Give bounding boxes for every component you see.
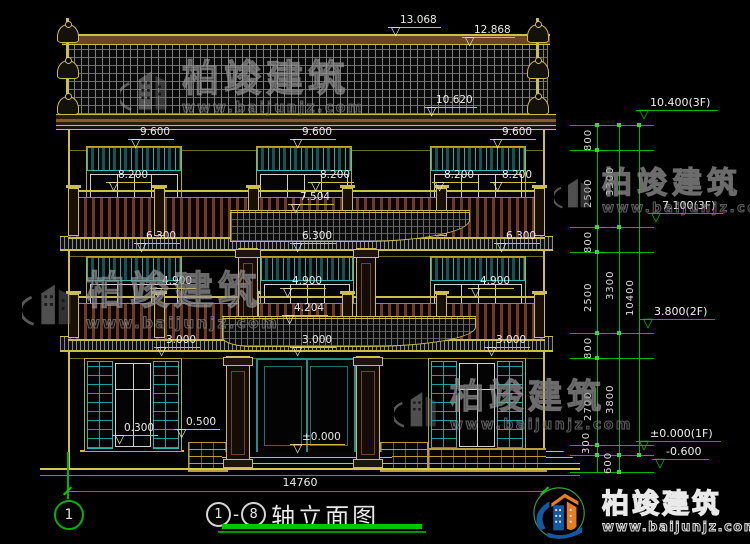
level-triangle-icon: ▽ bbox=[391, 27, 400, 36]
column-shaft bbox=[231, 371, 245, 455]
window-glazing bbox=[459, 363, 495, 447]
level-triangle-icon: ▽ bbox=[435, 182, 444, 191]
level-triangle-icon: ▽ bbox=[639, 441, 649, 451]
window-lattice-panel bbox=[431, 361, 457, 449]
level-triangle-icon: ▽ bbox=[639, 110, 649, 120]
elev-mark-roof-edge: 12.868▽ bbox=[462, 25, 515, 46]
side-steps bbox=[546, 446, 580, 470]
column-shaft bbox=[361, 371, 375, 455]
dim-node bbox=[617, 470, 621, 474]
finial-cap bbox=[57, 96, 79, 115]
dim-chain-line-c bbox=[639, 125, 640, 455]
title-underline-thick bbox=[222, 524, 422, 529]
elev-mark-6300: 6.300▽ bbox=[134, 231, 180, 252]
elev-mark-4204: 4.204▽ bbox=[282, 303, 328, 324]
elev-mark-0300: 0.300▽ bbox=[112, 423, 158, 444]
elev-mark-9600: 9.600▽ bbox=[128, 127, 174, 148]
level-mark-roof: 10.400(3F) ▽ bbox=[636, 97, 718, 120]
overall-width-dim: 14760 bbox=[260, 476, 340, 489]
level-triangle-icon: ▽ bbox=[177, 429, 186, 438]
column-shaft bbox=[243, 263, 253, 323]
dim-300: 300 bbox=[581, 428, 592, 454]
elev-mark-8200: 8.200▽ bbox=[490, 170, 536, 191]
elev-mark-3000: 3.000▽ bbox=[290, 335, 336, 356]
dim-node bbox=[595, 331, 599, 335]
porch-column-1f-right bbox=[356, 356, 380, 470]
dim-node bbox=[617, 331, 621, 335]
finial-cap bbox=[527, 60, 549, 79]
axis-number: 8 bbox=[250, 507, 258, 522]
level-triangle-icon: ▽ bbox=[655, 459, 665, 469]
level-triangle-icon: ▽ bbox=[311, 182, 320, 191]
level-triangle-icon: ▽ bbox=[157, 347, 166, 356]
level-triangle-icon: ▽ bbox=[293, 243, 302, 252]
level-triangle-icon: ▽ bbox=[465, 37, 474, 46]
column-base bbox=[223, 459, 253, 468]
dim-node bbox=[595, 225, 599, 229]
brand-text-block: 柏竣建筑 www.baijunjz.com bbox=[602, 491, 750, 534]
window-transom-ornament bbox=[87, 147, 181, 171]
level-triangle-icon: ▽ bbox=[283, 288, 292, 297]
level-triangle-icon: ▽ bbox=[471, 288, 480, 297]
level-triangle-icon: ▽ bbox=[137, 243, 146, 252]
railing-post bbox=[534, 294, 545, 338]
column-capital bbox=[353, 357, 383, 366]
elev-mark-8200: 8.200▽ bbox=[308, 170, 354, 191]
dim-node bbox=[595, 443, 599, 447]
elev-mark-4900: 4.900▽ bbox=[468, 276, 514, 297]
dim-node bbox=[617, 453, 621, 457]
elev-mark-8200: 8.200▽ bbox=[106, 170, 152, 191]
ground-line bbox=[40, 468, 580, 476]
dim-10400: 10400 bbox=[625, 264, 636, 316]
railing-post bbox=[534, 188, 545, 236]
axis-number: 1 bbox=[214, 507, 222, 522]
level-triangle-icon: ▽ bbox=[131, 139, 140, 148]
level-triangle-icon: ▽ bbox=[487, 347, 496, 356]
level-triangle-icon: ▽ bbox=[497, 243, 506, 252]
elev-mark-0500: 0.500▽ bbox=[174, 417, 220, 438]
railing-post bbox=[154, 294, 165, 338]
elev-mark-9600: 9.600▽ bbox=[490, 127, 536, 148]
dim-2700: 2700 bbox=[583, 381, 594, 421]
column-capital bbox=[353, 249, 379, 258]
window-lattice-panel bbox=[87, 361, 113, 449]
dim-2500: 2500 bbox=[583, 168, 594, 208]
window-transom-ornament bbox=[257, 147, 351, 171]
axis-bubble-1: 1 bbox=[54, 500, 84, 530]
porch-column-1f-left bbox=[226, 356, 250, 470]
finial-cap bbox=[57, 60, 79, 79]
elev-mark-4900: 4.900▽ bbox=[150, 276, 196, 297]
railing-post bbox=[154, 188, 165, 236]
dim-node bbox=[637, 453, 641, 457]
finial-cap bbox=[527, 96, 549, 115]
window-1f-right bbox=[428, 358, 526, 452]
brand-logo: 柏竣建筑 www.baijunjz.com bbox=[524, 484, 750, 542]
column-base bbox=[353, 459, 383, 468]
dim-3300: 3300 bbox=[605, 156, 616, 196]
elev-mark-6300: 6.300▽ bbox=[290, 231, 336, 252]
elev-mark-9600: 9.600▽ bbox=[290, 127, 336, 148]
level-mark-site: -0.600 ▽ bbox=[652, 446, 709, 469]
window-transom-ornament bbox=[431, 147, 525, 171]
level-triangle-icon: ▽ bbox=[651, 213, 661, 223]
elev-mark-6300: 6.300▽ bbox=[494, 231, 540, 252]
level-triangle-icon: ▽ bbox=[643, 319, 653, 329]
railing-post bbox=[68, 188, 79, 236]
overall-dim-line bbox=[68, 491, 545, 492]
dim-node bbox=[617, 225, 621, 229]
dim-node bbox=[595, 123, 599, 127]
level-triangle-icon: ▽ bbox=[291, 204, 300, 213]
elev-mark-8200: 8.200▽ bbox=[432, 170, 478, 191]
elev-mark-eave: 10.620▽ bbox=[424, 95, 477, 116]
level-triangle-icon: ▽ bbox=[109, 182, 118, 191]
level-triangle-icon: ▽ bbox=[293, 139, 302, 148]
dim-chain-line-b bbox=[619, 125, 620, 472]
level-triangle-icon: ▽ bbox=[285, 315, 294, 324]
elev-mark-7504: 7.504▽ bbox=[288, 192, 334, 213]
column-shaft bbox=[361, 263, 371, 323]
watermark-name: 柏竣建筑 bbox=[602, 168, 750, 200]
level-triangle-icon: ▽ bbox=[427, 107, 436, 116]
dim-node bbox=[637, 123, 641, 127]
level-mark-3f: 7.100(3F) ▽ bbox=[648, 200, 723, 223]
level-triangle-icon: ▽ bbox=[293, 444, 302, 453]
dim-chain-line-a bbox=[597, 125, 598, 472]
brand-name: 柏竣建筑 bbox=[602, 491, 750, 519]
elev-mark-0000: ±0.000▽ bbox=[290, 432, 345, 453]
elev-mark-3000: 3.000▽ bbox=[484, 335, 530, 356]
finial-cap bbox=[527, 24, 549, 43]
dim-800: 800 bbox=[583, 225, 594, 253]
level-triangle-icon: ▽ bbox=[153, 288, 162, 297]
level-mark-2f: 3.800(2F) ▽ bbox=[640, 306, 715, 329]
elev-mark-3000: 3.000▽ bbox=[154, 335, 200, 356]
elev-mark-4900: 4.900▽ bbox=[280, 276, 326, 297]
title-dash: - bbox=[233, 505, 239, 525]
axis-number: 1 bbox=[65, 507, 74, 523]
title-underline-thin bbox=[218, 531, 426, 533]
dim-node bbox=[617, 123, 621, 127]
dim-3300: 3300 bbox=[605, 260, 616, 300]
dim-800: 800 bbox=[583, 331, 594, 359]
elevation-drawing-canvas: 14760 1 800 2500 800 2500 800 2700 300 3… bbox=[0, 0, 750, 544]
level-triangle-icon: ▽ bbox=[293, 347, 302, 356]
column-capital bbox=[235, 249, 261, 258]
level-triangle-icon: ▽ bbox=[493, 182, 502, 191]
brand-url: www.baijunjz.com bbox=[602, 520, 750, 535]
brand-logo-icon bbox=[524, 484, 598, 542]
finial-cap bbox=[57, 24, 79, 43]
dim-800: 800 bbox=[583, 123, 594, 151]
dim-node bbox=[595, 356, 599, 360]
elev-mark-ridge: 13.068▽ bbox=[388, 15, 441, 36]
level-triangle-icon: ▽ bbox=[493, 139, 502, 148]
level-triangle-icon: ▽ bbox=[115, 435, 124, 444]
railing-post bbox=[68, 294, 79, 338]
roof-finial-right bbox=[527, 18, 549, 122]
column-capital bbox=[223, 357, 253, 366]
dim-600: 600 bbox=[603, 448, 614, 474]
dim-node bbox=[595, 250, 599, 254]
dim-node bbox=[595, 148, 599, 152]
roof-finial-left bbox=[57, 18, 79, 122]
window-lattice-panel bbox=[497, 361, 523, 449]
dim-node bbox=[595, 453, 599, 457]
dim-2500: 2500 bbox=[583, 272, 594, 312]
dim-3800: 3800 bbox=[605, 374, 616, 414]
